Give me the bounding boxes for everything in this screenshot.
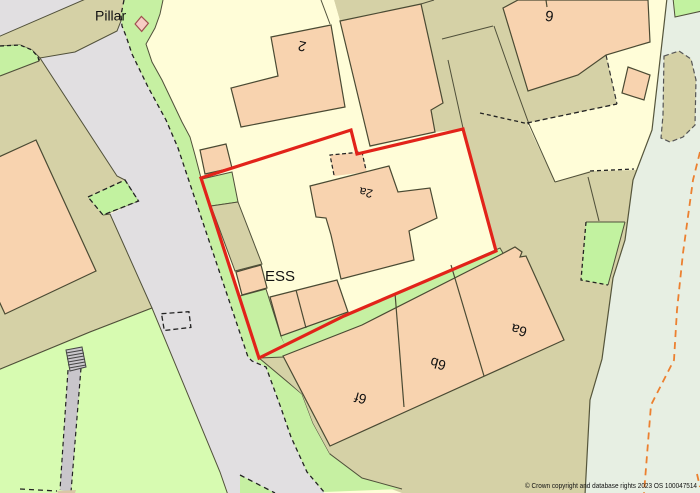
svg-text:ESS: ESS: [265, 268, 295, 285]
svg-text:© Crown copyright and database: © Crown copyright and database rights 20…: [525, 481, 697, 490]
svg-text:Pillar: Pillar: [95, 8, 126, 24]
